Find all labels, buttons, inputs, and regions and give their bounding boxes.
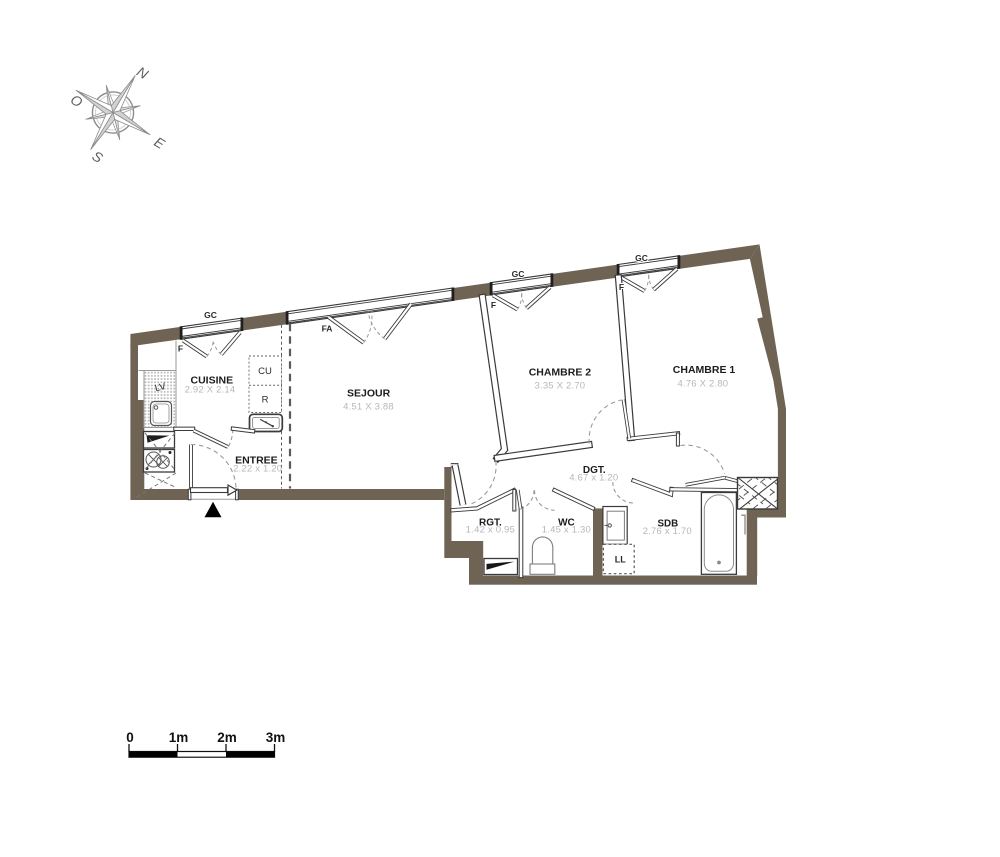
svg-text:E: E bbox=[151, 133, 168, 152]
svg-text:4.67 x 1.20: 4.67 x 1.20 bbox=[569, 473, 618, 484]
svg-text:3.35 X 2.70: 3.35 X 2.70 bbox=[535, 380, 586, 391]
svg-text:FA: FA bbox=[322, 324, 333, 334]
svg-text:CU: CU bbox=[258, 366, 272, 377]
svg-text:R: R bbox=[262, 395, 269, 406]
svg-text:CHAMBRE 1: CHAMBRE 1 bbox=[673, 364, 736, 376]
svg-text:1m: 1m bbox=[169, 730, 189, 745]
svg-text:1.42 x 0.95: 1.42 x 0.95 bbox=[466, 525, 515, 536]
svg-text:F: F bbox=[178, 344, 183, 354]
svg-text:GC: GC bbox=[204, 310, 217, 320]
svg-text:SEJOUR: SEJOUR bbox=[347, 387, 391, 399]
svg-text:4.51 X 3.88: 4.51 X 3.88 bbox=[343, 401, 394, 412]
svg-text:2m: 2m bbox=[217, 730, 237, 745]
svg-text:2.22 x 1.20: 2.22 x 1.20 bbox=[233, 463, 282, 474]
svg-text:GC: GC bbox=[635, 253, 648, 263]
svg-text:2.92 X 2.14: 2.92 X 2.14 bbox=[185, 384, 236, 395]
svg-text:3m: 3m bbox=[266, 730, 286, 745]
svg-text:N: N bbox=[134, 63, 152, 82]
svg-text:CHAMBRE 2: CHAMBRE 2 bbox=[529, 366, 592, 378]
svg-text:1.45 x 1.30: 1.45 x 1.30 bbox=[542, 525, 591, 536]
svg-text:S: S bbox=[89, 147, 106, 166]
svg-text:GC: GC bbox=[512, 269, 525, 279]
svg-text:LL: LL bbox=[615, 555, 626, 565]
svg-text:4.76 X 2.80: 4.76 X 2.80 bbox=[678, 378, 729, 389]
svg-text:F: F bbox=[619, 282, 624, 292]
svg-text:F: F bbox=[491, 300, 496, 310]
svg-text:0: 0 bbox=[126, 730, 134, 745]
svg-text:2.76 x 1.70: 2.76 x 1.70 bbox=[643, 526, 692, 537]
